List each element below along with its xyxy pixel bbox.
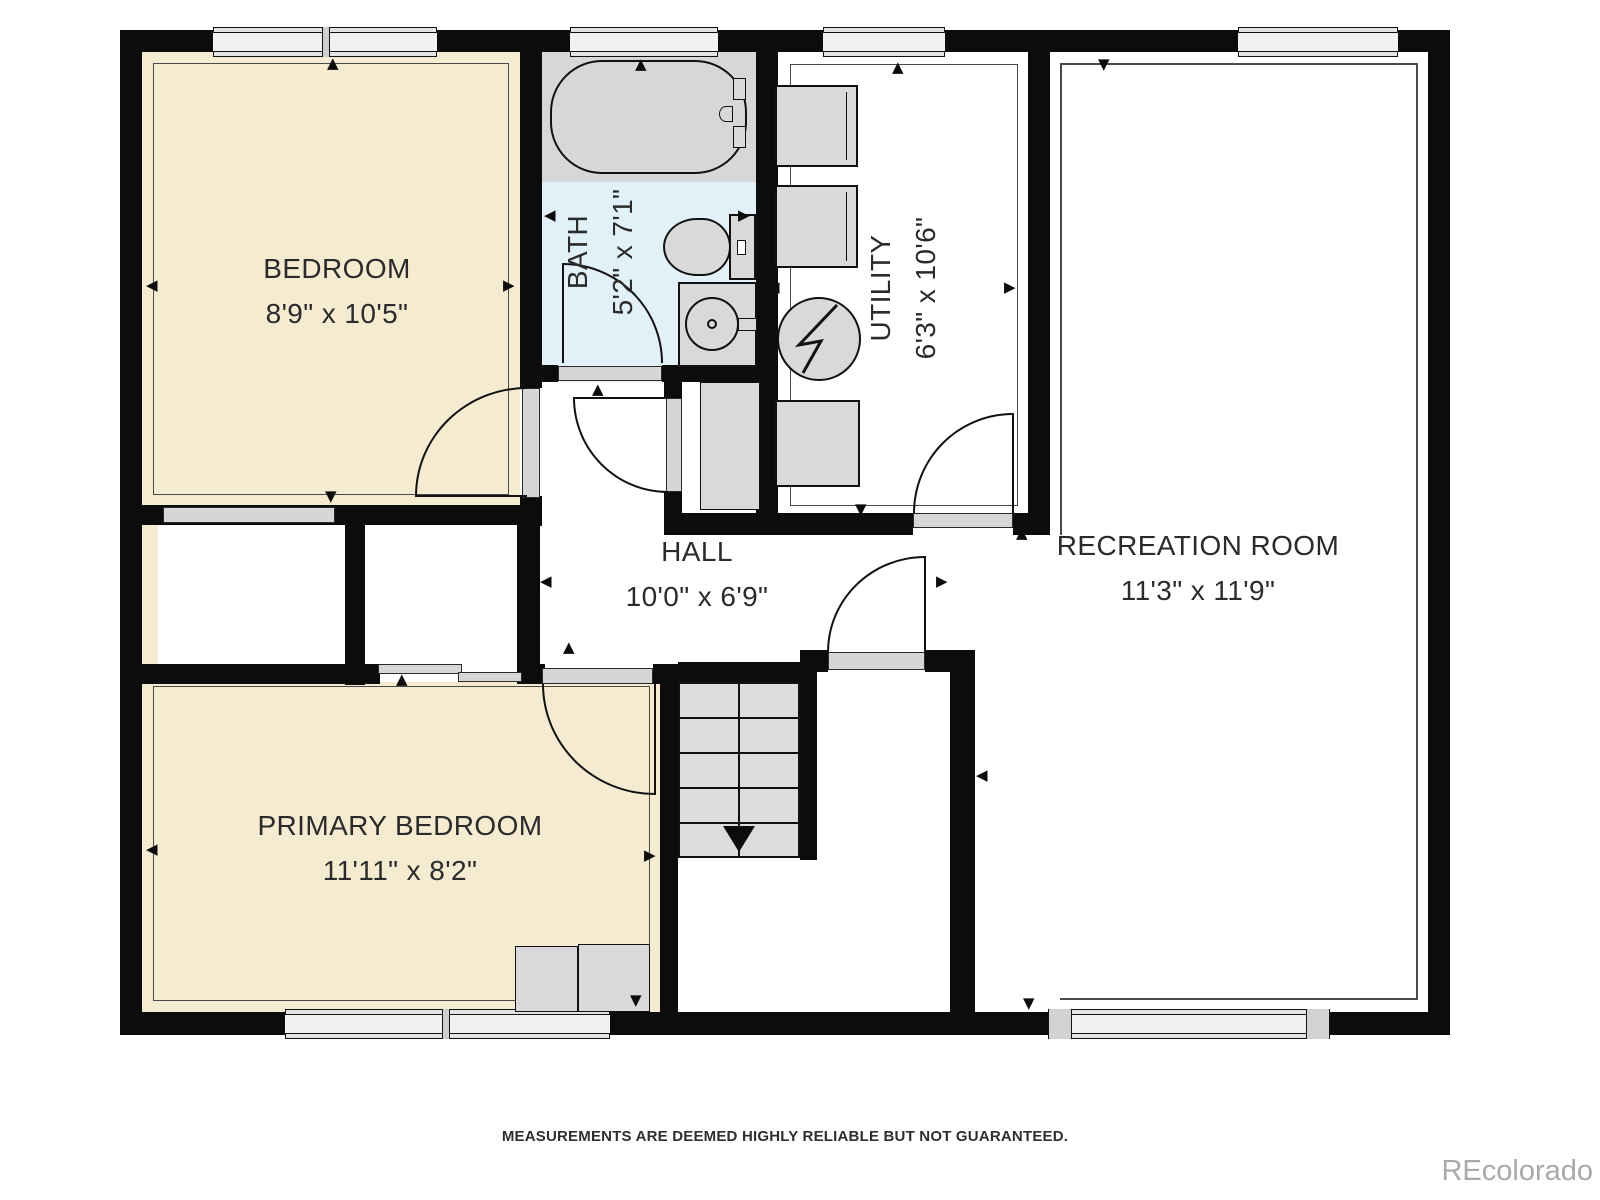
recreation-inner-line-top (1060, 63, 1418, 65)
stairs (678, 682, 800, 858)
room-name: PRIMARY BEDROOM (150, 803, 650, 848)
wall-outer-left (120, 30, 142, 1035)
wall-stairs-header (678, 662, 800, 682)
recreation-window-bottom (1048, 1009, 1330, 1039)
hall-label: HALL 10'0" x 6'9" (567, 529, 827, 619)
room-name: BATH (555, 102, 600, 402)
window-mullion (322, 27, 330, 57)
direction-arrow: ▶ (1004, 280, 1016, 295)
utility-label: UTILITY 6'3" x 10'6" (858, 128, 952, 448)
sink-drain-icon (707, 319, 717, 329)
primary-label: PRIMARY BEDROOM 11'11" x 8'2" (150, 803, 650, 893)
room-name: RECREATION ROOM (1008, 523, 1388, 568)
window-pane (823, 32, 945, 52)
bypass-door (458, 672, 522, 682)
hall-closet-door-opening (666, 398, 682, 492)
lightning-icon (779, 299, 859, 379)
wall-primary-top-left (142, 664, 380, 684)
washer-door-line (846, 92, 847, 160)
window-cap (1048, 1009, 1072, 1039)
window-mullion (442, 1009, 450, 1039)
bath-label: BATH 5'2" x 7'1" (555, 102, 645, 402)
direction-arrow: ▼ (1023, 996, 1035, 1011)
utility-door-opening (913, 513, 1013, 528)
sink-faucet-icon (738, 318, 757, 331)
direction-arrow: ▶ (936, 574, 948, 589)
door-swing-arc (573, 398, 668, 493)
bedroom-window (213, 27, 437, 57)
direction-arrow: ▲ (396, 672, 408, 687)
window-pane (1048, 1014, 1330, 1034)
primary-door-opening (542, 668, 653, 684)
window-pane (1238, 32, 1398, 52)
water-heater-icon (777, 297, 861, 381)
wall-closet-divider (345, 505, 365, 685)
wall-bath-bottom-left (520, 365, 558, 382)
recreation-inner-line-bottom (1060, 998, 1418, 1000)
direction-arrow: ◀ (540, 574, 552, 589)
tub-faucet-icon (733, 126, 746, 148)
wall-outer-right (1428, 30, 1450, 1035)
direction-arrow: ▼ (855, 502, 867, 517)
wall-primary-top-mid (518, 664, 545, 684)
room-name: UTILITY (858, 128, 903, 448)
dryer-door-line (846, 192, 847, 261)
room-dimensions: 5'2" x 7'1" (600, 102, 645, 402)
direction-arrow: ◀ (146, 842, 158, 857)
wall-utility-recreation (1028, 52, 1050, 535)
recreation-window-top (1238, 27, 1398, 57)
room-dimensions: 11'3" x 11'9" (1008, 568, 1388, 613)
door-swing-arc (827, 556, 925, 652)
wall-stairs-right (800, 650, 817, 860)
room-dimensions: 10'0" x 6'9" (567, 574, 827, 619)
recreation-inner-line-right (1416, 63, 1418, 1000)
recreation-inner-line-left (1060, 63, 1062, 535)
direction-arrow: ▼ (630, 993, 642, 1008)
appliance-icon (775, 400, 860, 487)
room-name: HALL (567, 529, 827, 574)
wall-closet-right (517, 505, 540, 684)
direction-arrow: ▶ (503, 278, 515, 293)
room-name: BEDROOM (157, 246, 517, 291)
primary-window (285, 1009, 610, 1039)
direction-arrow: ▲ (635, 57, 647, 72)
wall-understairs-right (950, 650, 975, 1012)
wall-bath-bottom-right (662, 365, 778, 382)
wall-bedroom-bath (520, 52, 542, 388)
watermark: REcolorado (1441, 1155, 1593, 1188)
disclaimer: MEASUREMENTS ARE DEEMED HIGHLY RELIABLE … (0, 1128, 1570, 1145)
hall-rec-door-opening (828, 652, 925, 670)
direction-arrow: ▲ (563, 640, 575, 655)
direction-arrow: ▶ (644, 848, 656, 863)
furnace-icon (700, 382, 760, 510)
window-pane (570, 32, 718, 52)
window-cap (1306, 1009, 1330, 1039)
stairs-direction-arrow (723, 826, 755, 852)
wall-stairs-left (660, 664, 678, 1012)
direction-arrow: ◀ (544, 208, 556, 223)
direction-arrow: ▼ (1098, 57, 1110, 72)
direction-arrow: ▲ (592, 382, 604, 397)
utility-window (823, 27, 945, 57)
dresser-icon (515, 946, 578, 1012)
room-dimensions: 8'9" x 10'5" (157, 291, 517, 336)
bypass-door (378, 664, 462, 674)
tub-spout-icon (719, 106, 733, 122)
bath-window (570, 27, 718, 57)
direction-arrow: ◀ (146, 278, 158, 293)
closet-door (163, 507, 335, 523)
direction-arrow: ▲ (1016, 526, 1028, 541)
room-dimensions: 11'11" x 8'2" (150, 848, 650, 893)
washer-icon (775, 85, 858, 167)
toilet-icon (663, 218, 731, 276)
dryer-icon (775, 185, 858, 268)
floor-plan: ▲ ◀ ▶ ▼ ▲ ◀ ▶ ▲ ▲ ◀ ▶ ▼ ▼ ▲ ◀ ▼ ◀ ▶ ▲ ▲ … (120, 30, 1450, 1035)
bedroom-floor-strip (142, 505, 158, 667)
tub-faucet-icon (733, 78, 746, 100)
direction-arrow: ▶ (738, 208, 750, 223)
toilet-flush-button (737, 240, 746, 255)
room-dimensions: 6'3" x 10'6" (903, 128, 948, 448)
direction-arrow: ▲ (892, 60, 904, 75)
recreation-label: RECREATION ROOM 11'3" x 11'9" (1008, 523, 1388, 613)
bedroom-label: BEDROOM 8'9" x 10'5" (157, 246, 517, 336)
direction-arrow: ◀ (768, 280, 780, 295)
wall-hall-closet-lower (664, 492, 682, 515)
direction-arrow: ▲ (327, 56, 339, 71)
direction-arrow: ▼ (325, 489, 337, 504)
direction-arrow: ◀ (976, 768, 988, 783)
